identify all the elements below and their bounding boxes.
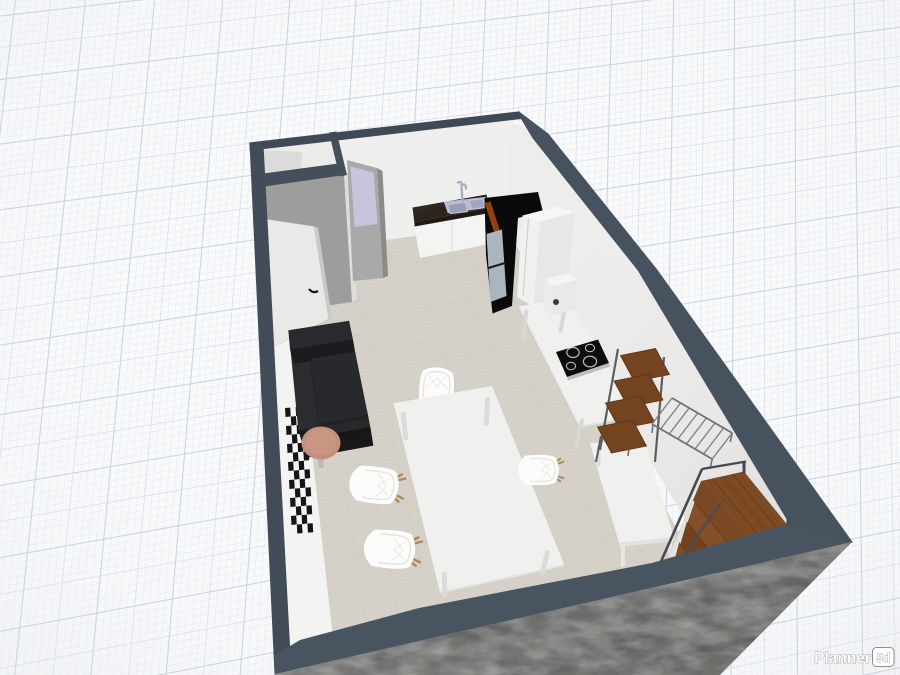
svg-text:Planner: Planner	[814, 650, 871, 667]
svg-text:5d: 5d	[876, 651, 890, 665]
